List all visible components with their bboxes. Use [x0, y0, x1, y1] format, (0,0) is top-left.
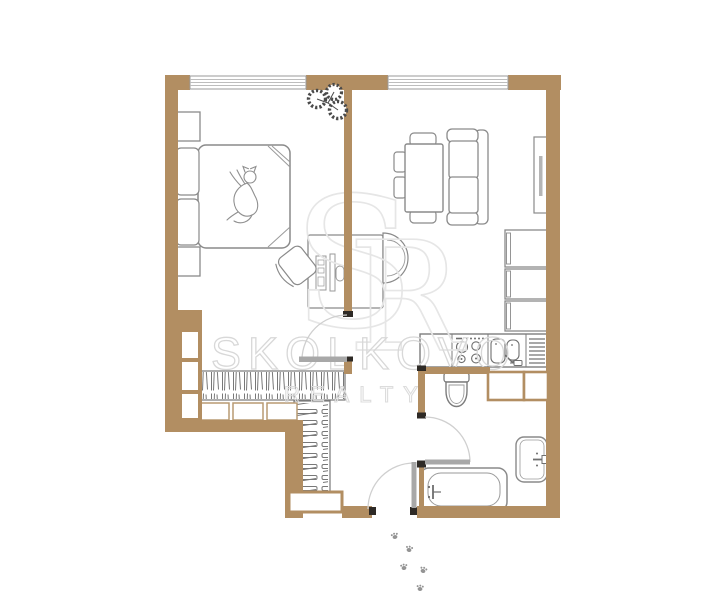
paw-prints-icon: [390, 532, 428, 591]
closet-cells-row: [197, 403, 297, 420]
window-top-left: [190, 76, 306, 89]
drying-rack: [529, 339, 545, 363]
door-bathroom: [425, 417, 470, 465]
kitchen-tall-units: [505, 230, 547, 331]
floor-plan-svg: S R SKOLKOVO REALTY: [0, 0, 720, 600]
vent-shafts: [488, 372, 548, 400]
bed-pillows: [176, 148, 199, 245]
watermark-division: REALTY: [284, 382, 428, 407]
bedroom-bed: [171, 145, 290, 248]
window-top-right: [388, 76, 508, 89]
tv-panel: [534, 137, 547, 213]
door-entrance: [368, 462, 417, 509]
closet-cells-column: [182, 332, 198, 418]
bathtub: [420, 468, 507, 511]
floor-plan-page: S R SKOLKOVO REALTY: [0, 0, 720, 600]
bathroom-sink: [516, 437, 548, 482]
entrance-bench: [289, 492, 342, 512]
